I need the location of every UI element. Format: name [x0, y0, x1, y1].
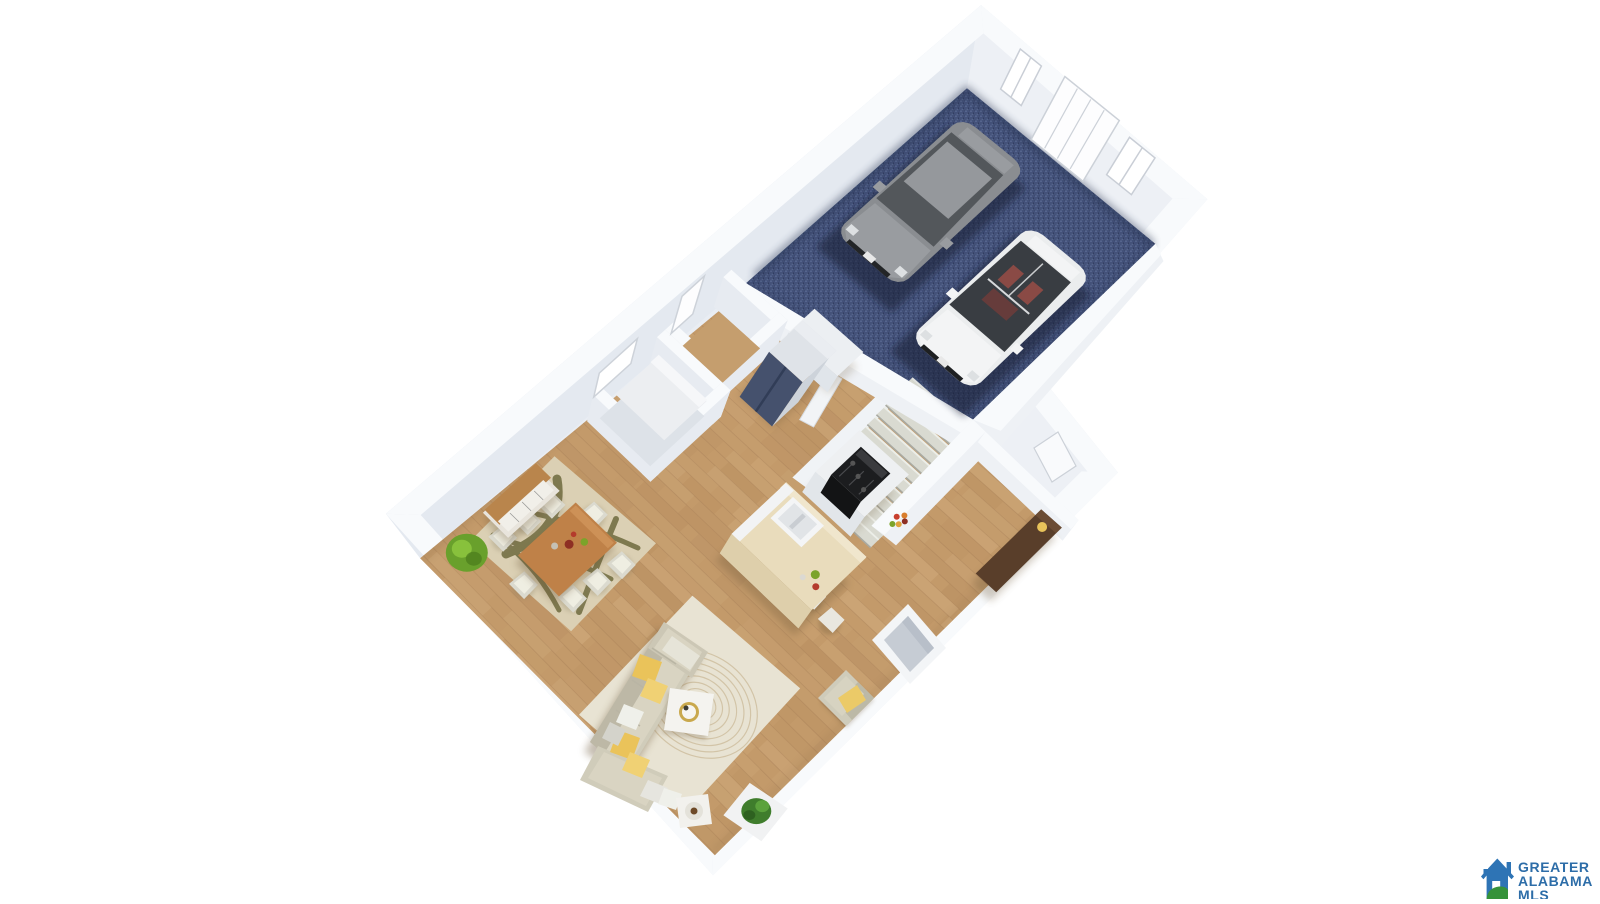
svg-text:MLS: MLS: [1518, 887, 1549, 899]
